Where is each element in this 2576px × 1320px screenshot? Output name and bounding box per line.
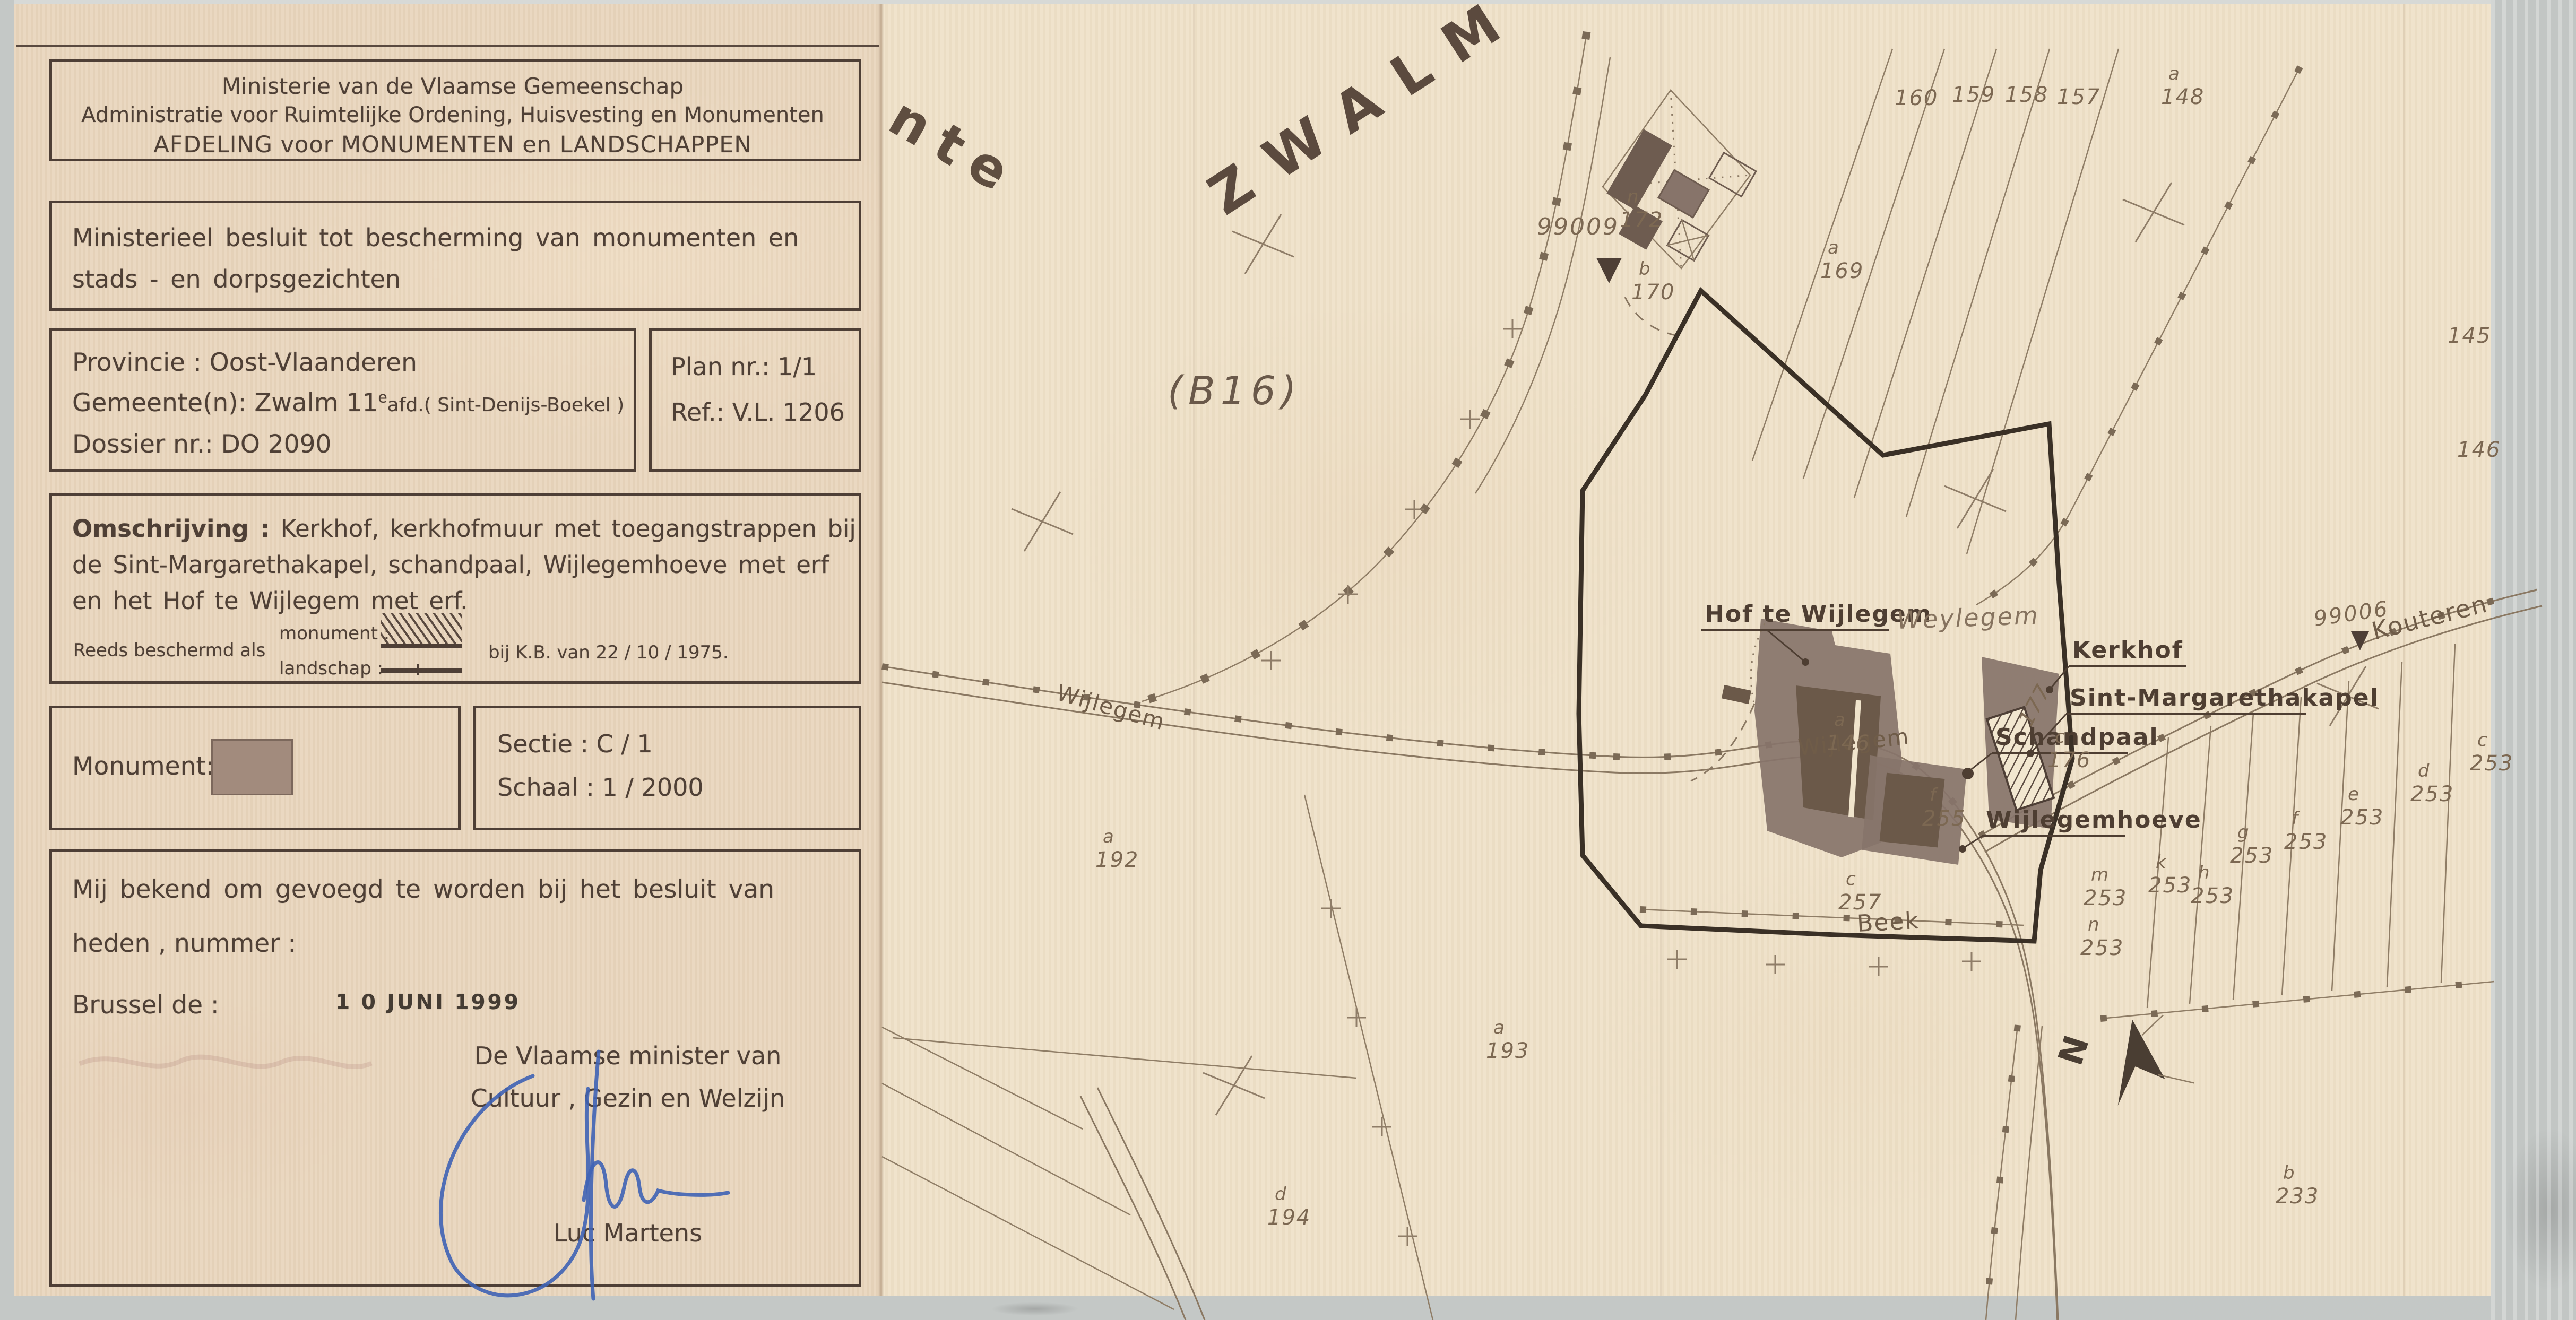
monument-hatch-swatch [381,613,462,648]
minister-title-line1: De Vlaamse minister van [423,1041,832,1070]
scanner-edge-left [0,0,14,1320]
already-protected-prefix: Reeds beschermd als [73,640,265,661]
municipality-prefix: Gemeente(n): Zwalm 11 [72,388,378,418]
kb-date-note: bij K.B. van 22 / 10 / 1975. [488,642,729,663]
minister-title-line2: Cultuur , Gezin en Welzijn [423,1084,832,1113]
municipality-line: Gemeente(n): Zwalm 11eafd.( Sint-Denijs-… [72,388,624,418]
plan-box: Plan nr.: 1/1 Ref.: V.L. 1206 [649,328,861,472]
header-box: Ministerie van de Vlaamse Gemeenschap Ad… [49,59,861,161]
landscape-line-tick [417,664,419,675]
monument-label: Monument: [72,752,214,781]
closing-box: Mij bekend om gevoegd te worden bij het … [49,849,861,1287]
plan-nr-line: Plan nr.: 1/1 [671,352,817,381]
scanner-edge-bottom [0,1296,2576,1320]
paper-crease [1660,4,1662,1296]
closing-line2: heden , nummer : [72,929,296,958]
minister-name: Luc Martens [423,1219,832,1247]
sheet-fold [878,4,884,1296]
municipality-suffix: afd.( Sint-Denijs-Boekel ) [387,394,625,416]
decree-line2: stads - en dorpsgezichten [72,265,401,293]
scanner-edge-right [2491,0,2576,1320]
dossier-line: Dossier nr.: DO 2090 [72,430,331,459]
description-line3: en het Hof te Wijlegem met erf. [72,587,468,615]
description-label: Omschrijving : [72,515,270,543]
scanned-protection-plan: Ministerie van de Vlaamse Gemeenschap Ad… [0,0,2576,1320]
description-line1: Omschrijving : Kerkhof, kerkhofmuur met … [72,515,856,543]
sectie-line: Sectie : C / 1 [497,730,653,758]
schaal-line: Schaal : 1 / 2000 [497,773,704,802]
scan-smudge [976,1300,1093,1318]
paper-crease [2403,4,2405,1296]
division-line: AFDELING voor MONUMENTEN en LANDSCHAPPEN [52,132,853,158]
description-box: Omschrijving : Kerkhof, kerkhofmuur met … [49,493,861,684]
closing-line1: Mij bekend om gevoegd te worden bij het … [72,875,774,904]
sheet-top-rule [16,45,879,47]
landscape-legend-label: landschap : [279,658,383,679]
scanner-edge-top [0,0,2576,4]
ministry-line: Ministerie van de Vlaamse Gemeenschap [52,73,853,99]
description-text1: Kerkhof, kerkhofmuur met toegangstrappen… [281,515,856,543]
municipality-sup: e [378,388,387,406]
map-sheet [882,4,2491,1296]
paper-crease [1193,4,1195,1296]
administration-line: Administratie voor Ruimtelijke Ordening,… [52,103,853,127]
section-box: Sectie : C / 1 Schaal : 1 / 2000 [473,706,861,830]
landscape-line-swatch [381,668,462,673]
date-stamp: 1 0 JUNI 1999 [335,991,521,1014]
monument-legend-label: monument : [279,623,390,644]
province-line: Provincie : Oost-Vlaanderen [72,348,417,377]
decree-line1: Ministerieel besluit tot bescherming van… [72,223,799,252]
decree-box: Ministerieel besluit tot bescherming van… [49,201,861,311]
description-line2: de Sint-Margarethakapel, schandpaal, Wij… [72,551,829,579]
monument-box: Monument: [49,706,461,830]
details-box: Provincie : Oost-Vlaanderen Gemeente(n):… [49,328,636,472]
ref-line: Ref.: V.L. 1206 [671,398,845,427]
monument-color-swatch [211,739,293,795]
place-line: Brussel de : [72,991,219,1020]
